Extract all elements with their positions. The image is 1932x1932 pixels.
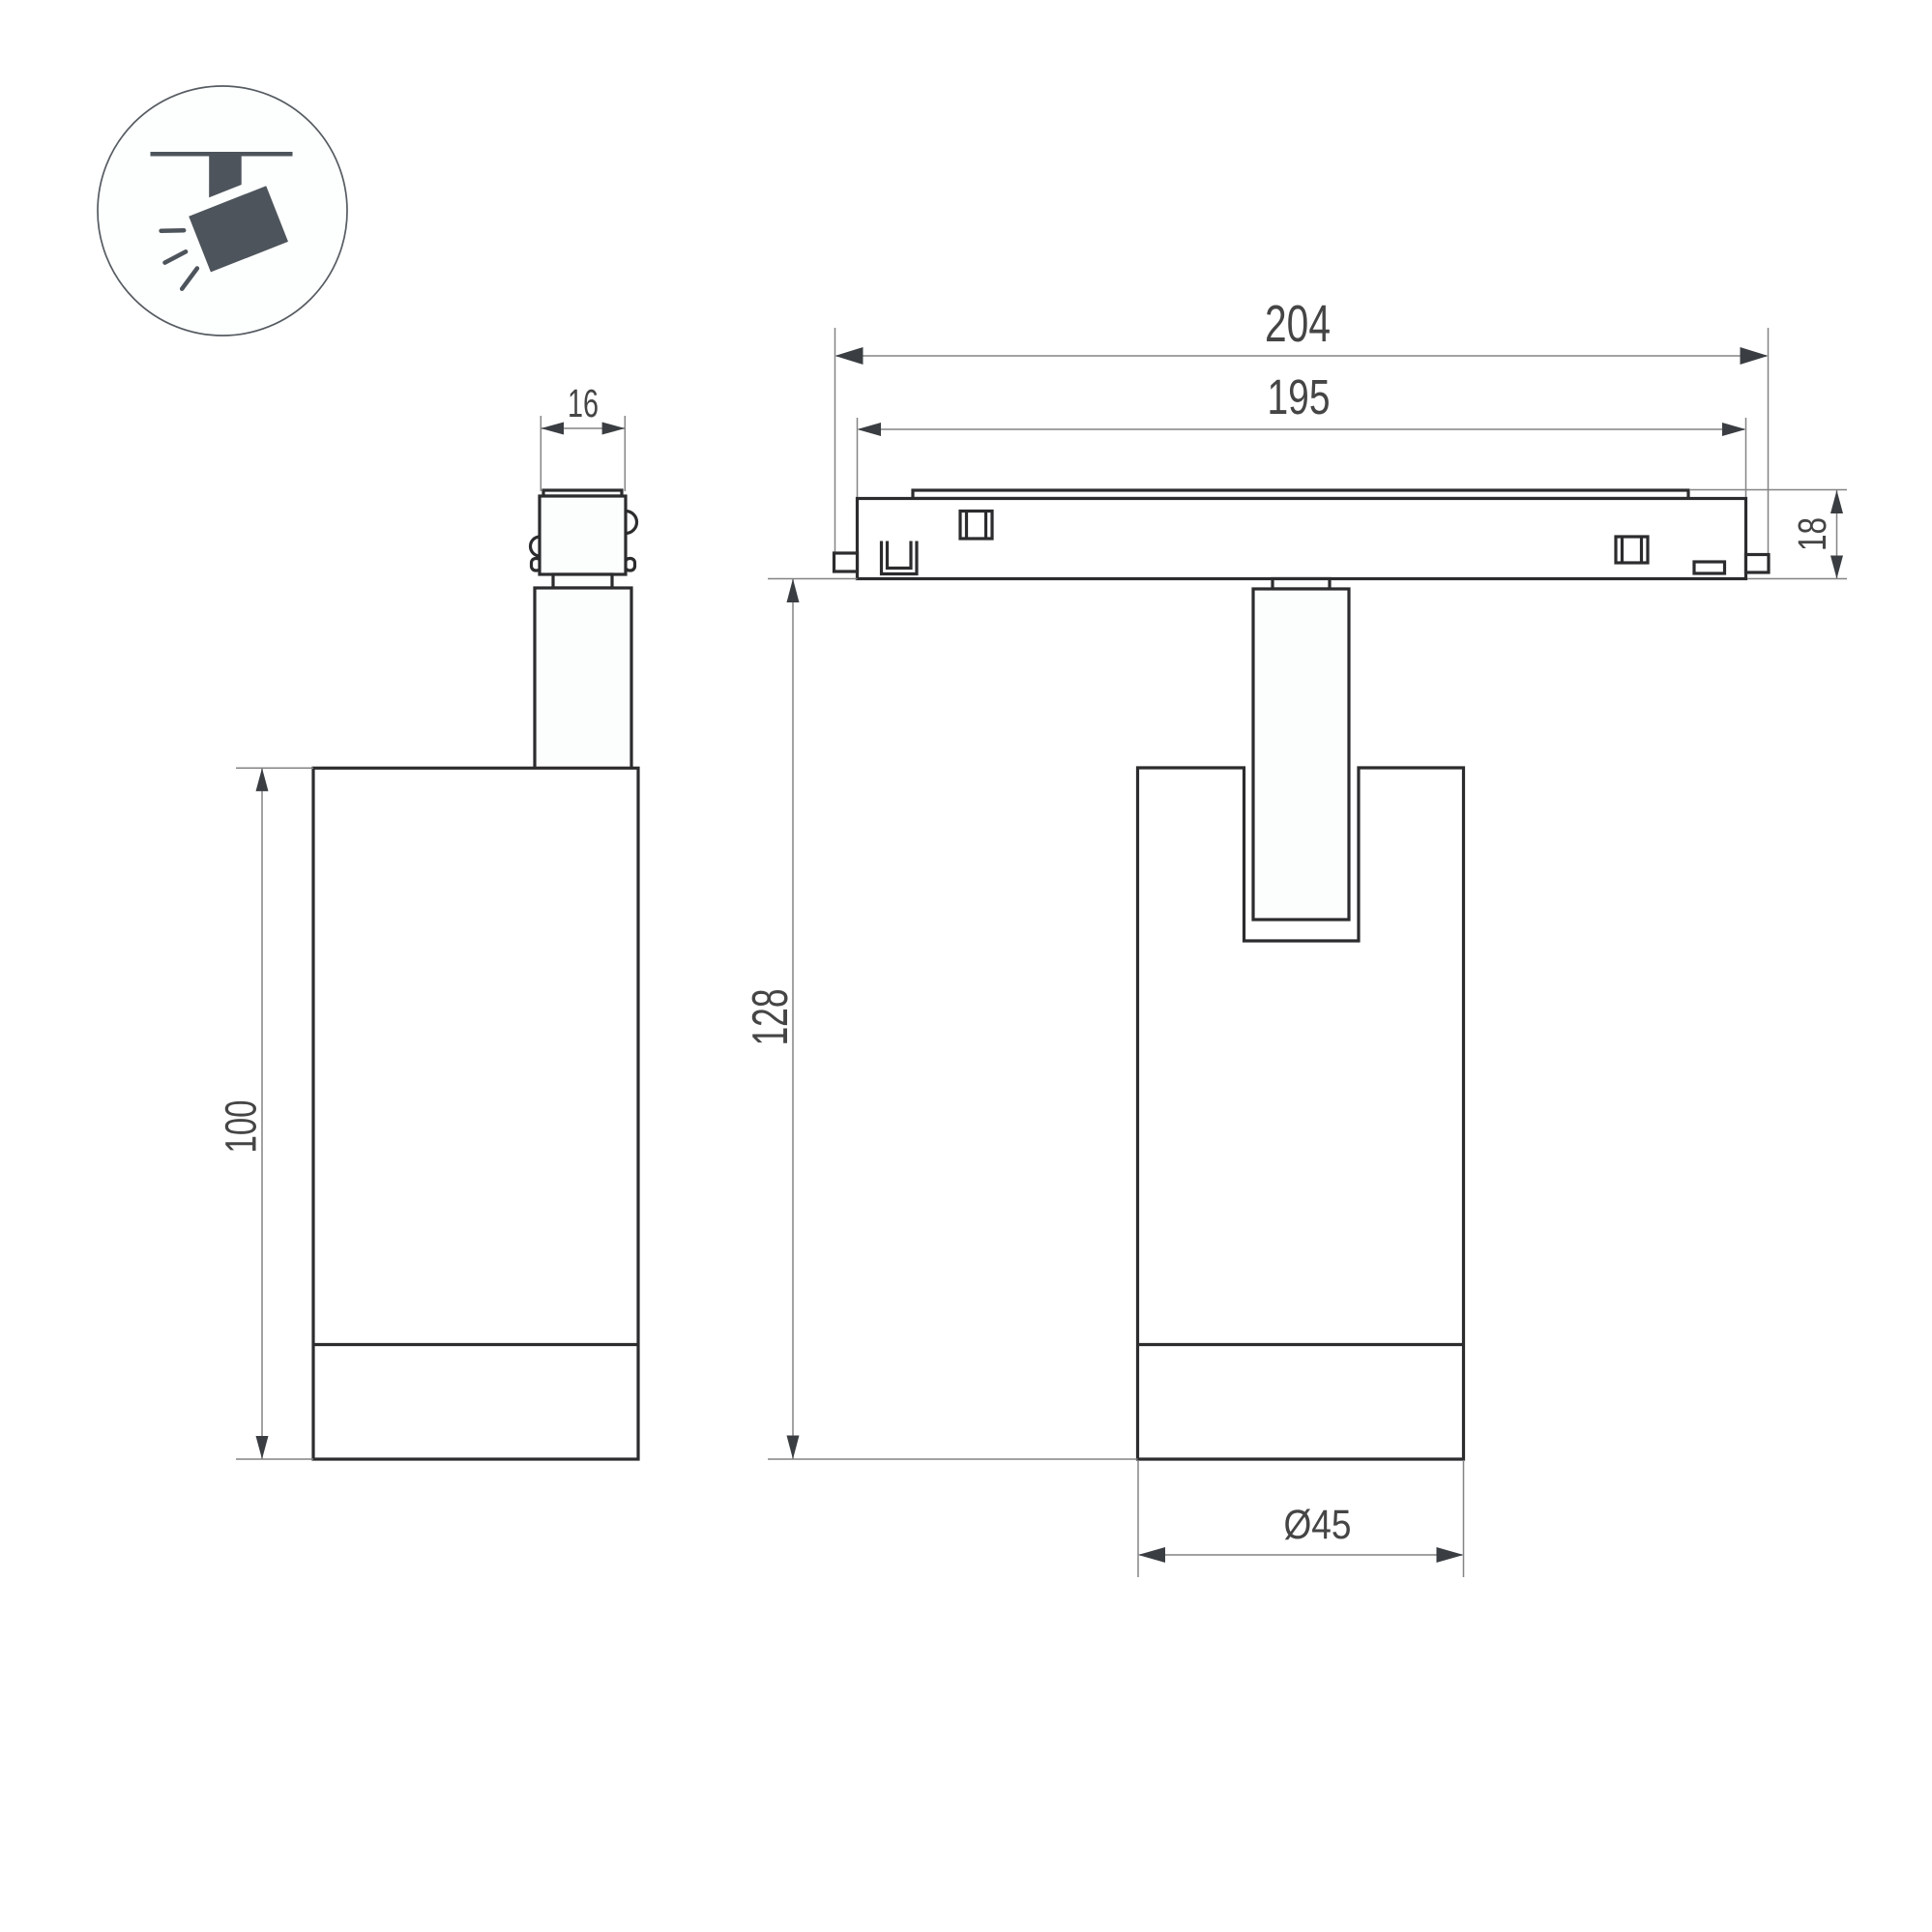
- svg-text:18: 18: [1790, 517, 1834, 551]
- svg-text:Ø45: Ø45: [1284, 1502, 1352, 1548]
- svg-text:128: 128: [743, 989, 799, 1046]
- svg-text:100: 100: [217, 1100, 266, 1154]
- svg-text:195: 195: [1268, 369, 1331, 424]
- svg-text:204: 204: [1265, 295, 1331, 353]
- svg-text:16: 16: [568, 381, 599, 425]
